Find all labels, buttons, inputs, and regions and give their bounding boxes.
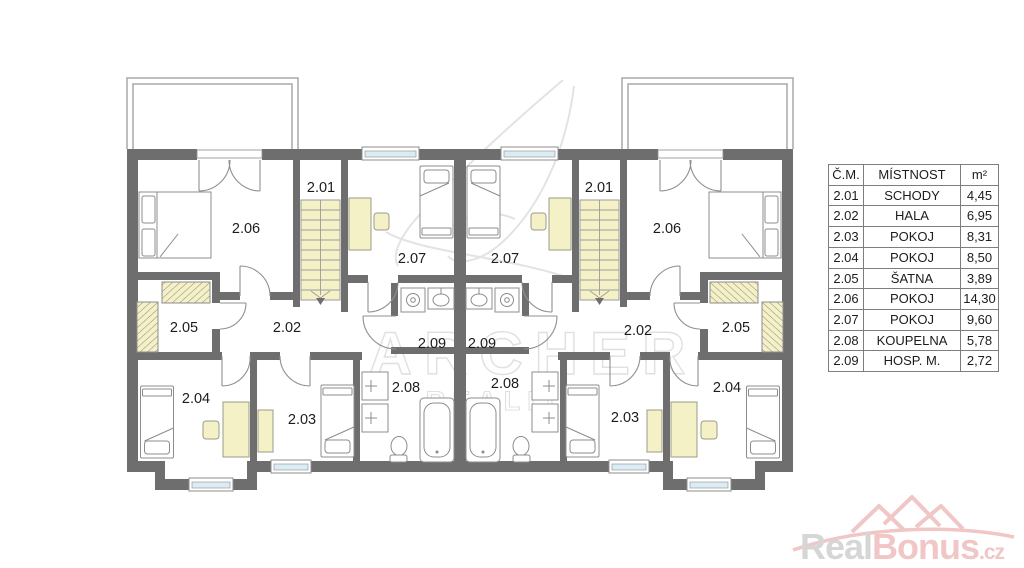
realbonus-logo-cz: .cz — [979, 541, 1005, 564]
unit-right — [458, 78, 793, 491]
legend-header-number: Č.M. — [829, 165, 864, 186]
legend-header-area: m² — [961, 165, 999, 186]
legend-row: 2.04 POKOJ 8,50 — [829, 247, 999, 268]
legend-cell-area: 9,60 — [961, 309, 999, 330]
legend-cell-area: 3,89 — [961, 268, 999, 289]
realbonus-logo-bonus: Bonus — [872, 526, 979, 567]
legend-cell-area: 8,31 — [961, 227, 999, 248]
legend-header-roomname: MÍSTNOST — [864, 165, 961, 186]
legend-row: 2.06 POKOJ 14,30 — [829, 289, 999, 310]
double-bed-icon — [139, 192, 211, 258]
desk-icon — [203, 402, 249, 457]
legend-row: 2.09 HOSP. M. 2,72 — [829, 351, 999, 372]
room-label-204-right: 2.04 — [713, 380, 741, 396]
legend-cell-number: 2.08 — [829, 330, 864, 351]
legend-cell-area: 2,72 — [961, 351, 999, 372]
legend-cell-name: POKOJ — [864, 309, 961, 330]
legend-cell-name: POKOJ — [864, 227, 961, 248]
legend-cell-name: POKOJ — [864, 247, 961, 268]
legend-row: 2.03 POKOJ 8,31 — [829, 227, 999, 248]
legend-cell-number: 2.02 — [829, 206, 864, 227]
legend-cell-number: 2.04 — [829, 247, 864, 268]
legend-row: 2.02 HALA 6,95 — [829, 206, 999, 227]
legend-cell-name: HALA — [864, 206, 961, 227]
room-label-204-left: 2.04 — [182, 391, 210, 407]
legend-cell-number: 2.07 — [829, 309, 864, 330]
toilet-icon — [390, 437, 407, 463]
floor-plan-page: ARCHER REALITY — [0, 0, 1024, 568]
room-label-207-left: 2.07 — [398, 251, 426, 267]
legend-cell-name: POKOJ — [864, 289, 961, 310]
legend-cell-area: 6,95 — [961, 206, 999, 227]
legend-cell-area: 8,50 — [961, 247, 999, 268]
legend-cell-area: 5,78 — [961, 330, 999, 351]
single-bed-icon — [321, 385, 354, 457]
wardrobe-icon — [137, 282, 210, 352]
sink-icon — [362, 404, 388, 432]
room-label-205-right: 2.05 — [722, 320, 750, 336]
room-label-206-left: 2.06 — [232, 221, 260, 237]
desk-icon — [349, 198, 389, 250]
room-legend-table: Č.M. MÍSTNOST m² 2.01 SCHODY 4,45 2.02 H… — [828, 164, 999, 372]
room-label-208-right: 2.08 — [491, 376, 519, 392]
legend-row: 2.05 ŠATNA 3,89 — [829, 268, 999, 289]
realbonus-logo-real: Real — [800, 526, 872, 567]
legend-cell-area: 14,30 — [961, 289, 999, 310]
room-label-202-right: 2.02 — [624, 323, 652, 339]
room-label-203-right: 2.03 — [611, 410, 639, 426]
room-label-203-left: 2.03 — [288, 412, 316, 428]
sink-icon — [362, 372, 388, 400]
room-label-205-left: 2.05 — [170, 320, 198, 336]
bathtub-icon — [420, 398, 454, 462]
unit-left — [127, 78, 462, 491]
legend-cell-area: 4,45 — [961, 185, 999, 206]
single-bed-icon — [420, 166, 453, 238]
desk-icon — [258, 410, 273, 452]
room-label-208-left: 2.08 — [392, 380, 420, 396]
room-label-206-right: 2.06 — [653, 221, 681, 237]
single-bed-icon — [141, 386, 174, 458]
legend-row: 2.08 KOUPELNA 5,78 — [829, 330, 999, 351]
agency-watermark: ARCHER REALITY — [369, 80, 698, 416]
washing-machine-icon — [401, 288, 425, 312]
realbonus-logo-text: RealBonus.cz — [800, 526, 1005, 567]
room-label-201-right: 2.01 — [585, 180, 613, 196]
room-label-207-right: 2.07 — [491, 251, 519, 267]
legend-cell-number: 2.09 — [829, 351, 864, 372]
legend-cell-number: 2.06 — [829, 289, 864, 310]
legend-cell-number: 2.01 — [829, 185, 864, 206]
stairs-icon — [301, 200, 340, 305]
legend-row: 2.07 POKOJ 9,60 — [829, 309, 999, 330]
room-label-209-left: 2.09 — [418, 336, 446, 352]
room-label-209-right: 2.09 — [468, 336, 496, 352]
legend-row: 2.01 SCHODY 4,45 — [829, 185, 999, 206]
legend-cell-name: ŠATNA — [864, 268, 961, 289]
legend-cell-number: 2.05 — [829, 268, 864, 289]
legend-cell-name: HOSP. M. — [864, 351, 961, 372]
realbonus-logo: RealBonus.cz — [793, 497, 1014, 567]
room-label-202-left: 2.02 — [273, 320, 301, 336]
legend-cell-number: 2.03 — [829, 227, 864, 248]
sink-icon — [428, 288, 454, 309]
legend-header-row: Č.M. MÍSTNOST m² — [829, 165, 999, 186]
legend-cell-name: KOUPELNA — [864, 330, 961, 351]
room-label-201-left: 2.01 — [307, 180, 335, 196]
balcony-rail — [127, 78, 298, 149]
legend-cell-name: SCHODY — [864, 185, 961, 206]
